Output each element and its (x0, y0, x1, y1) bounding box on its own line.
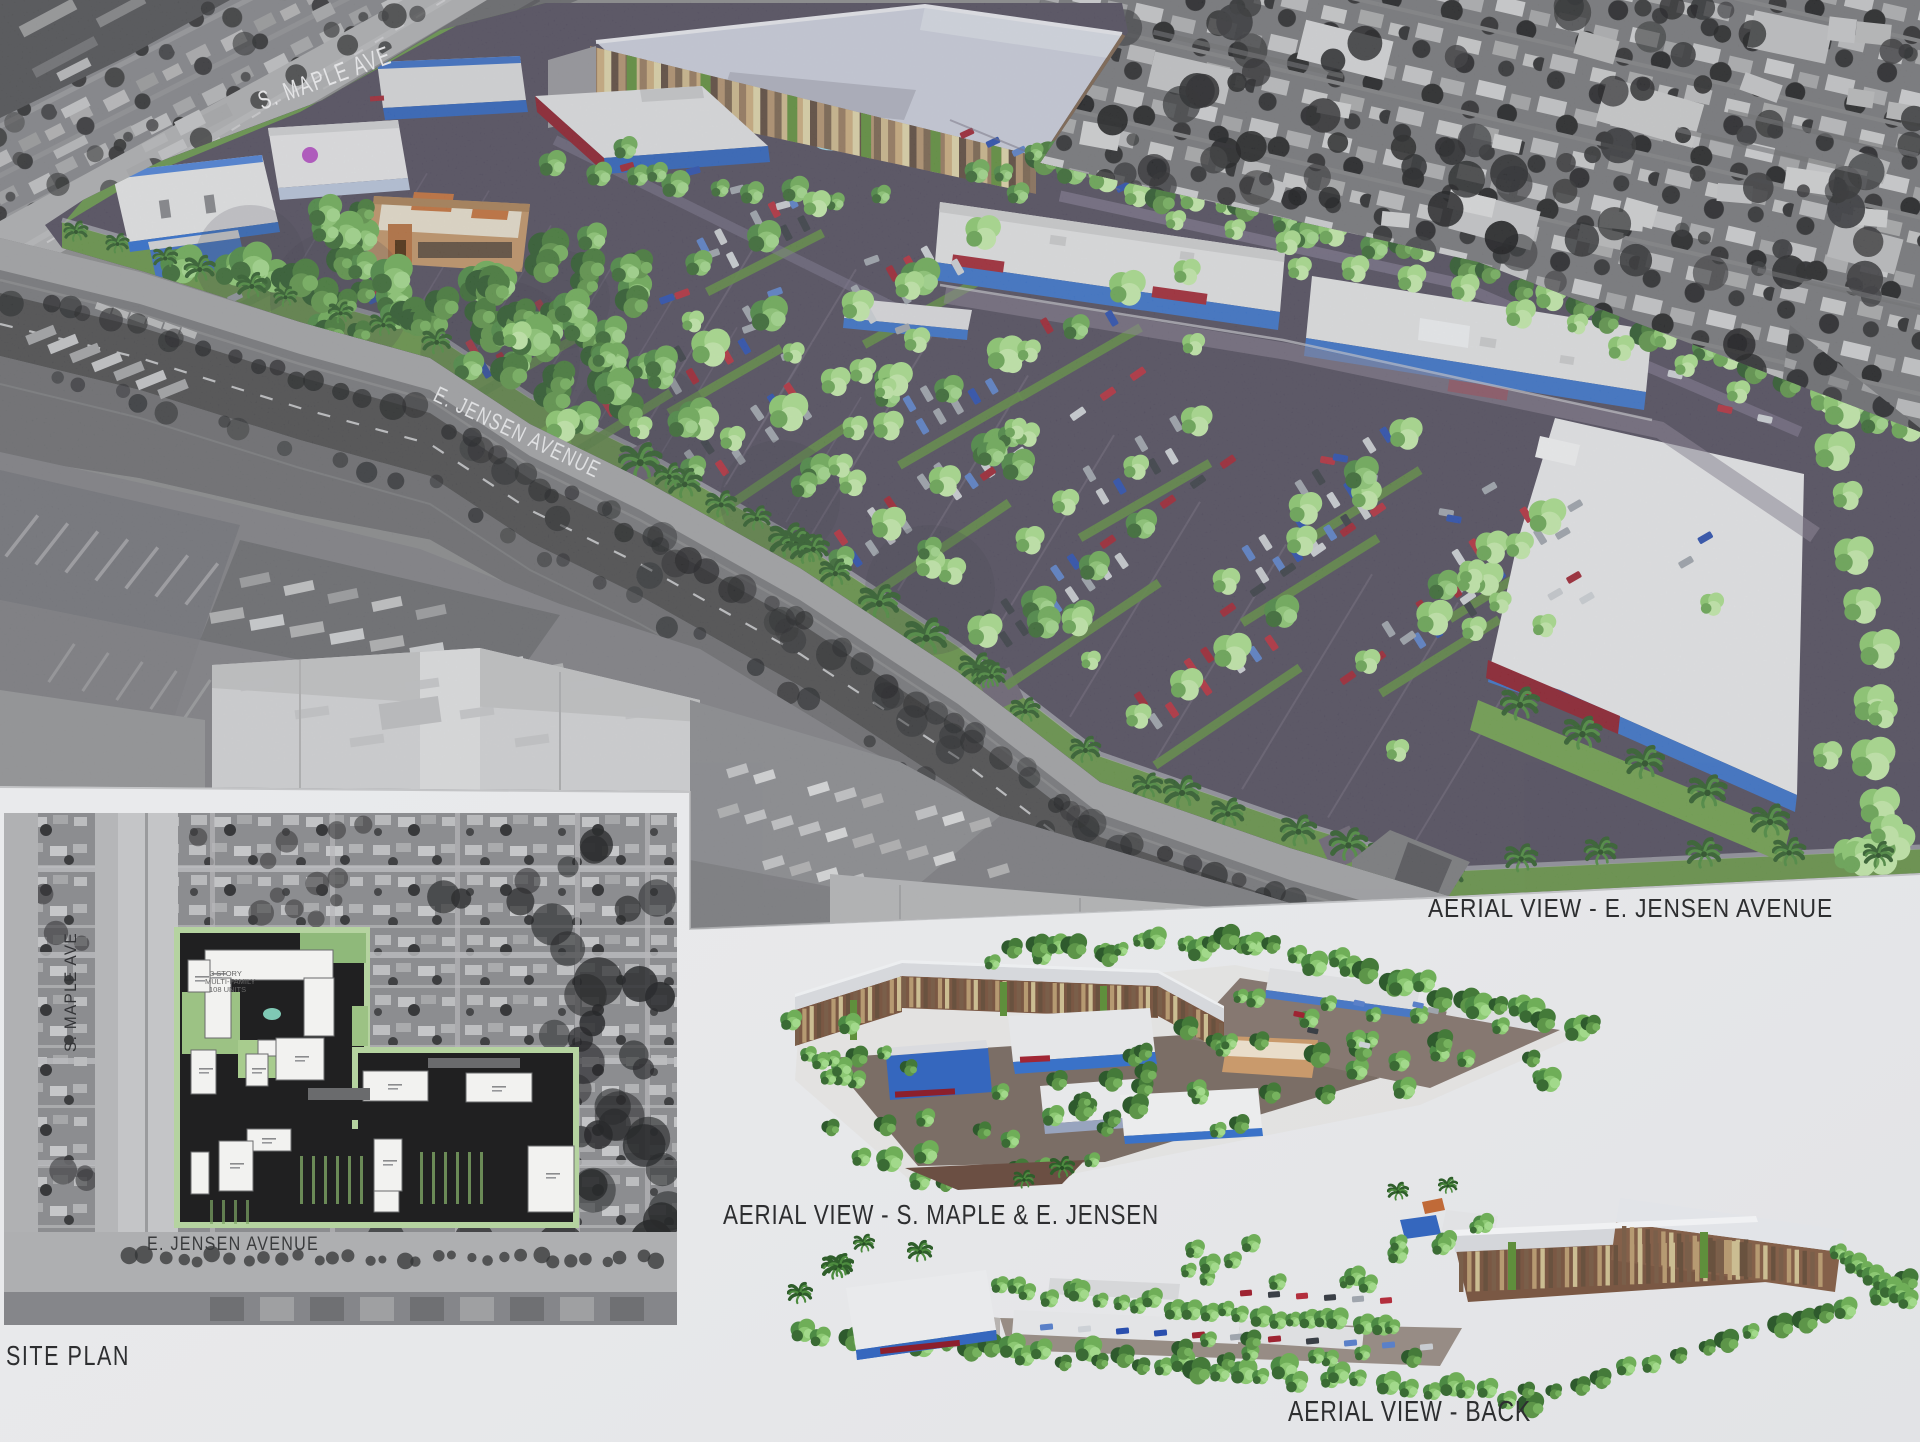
svg-text:E. JENSEN AVENUE: E. JENSEN AVENUE (147, 1234, 319, 1255)
svg-text:SITE PLAN: SITE PLAN (6, 1340, 130, 1371)
svg-text:AERIAL VIEW - BACK: AERIAL VIEW - BACK (1288, 1396, 1531, 1428)
svg-text:S. MAPLE AVE: S. MAPLE AVE (61, 932, 80, 1052)
svg-text:AERIAL VIEW - S. MAPLE & E. JE: AERIAL VIEW - S. MAPLE & E. JENSEN (723, 1199, 1159, 1230)
svg-text:108 UNITS: 108 UNITS (209, 985, 246, 994)
svg-text:AERIAL VIEW - E. JENSEN AVENUE: AERIAL VIEW - E. JENSEN AVENUE (1428, 893, 1833, 923)
